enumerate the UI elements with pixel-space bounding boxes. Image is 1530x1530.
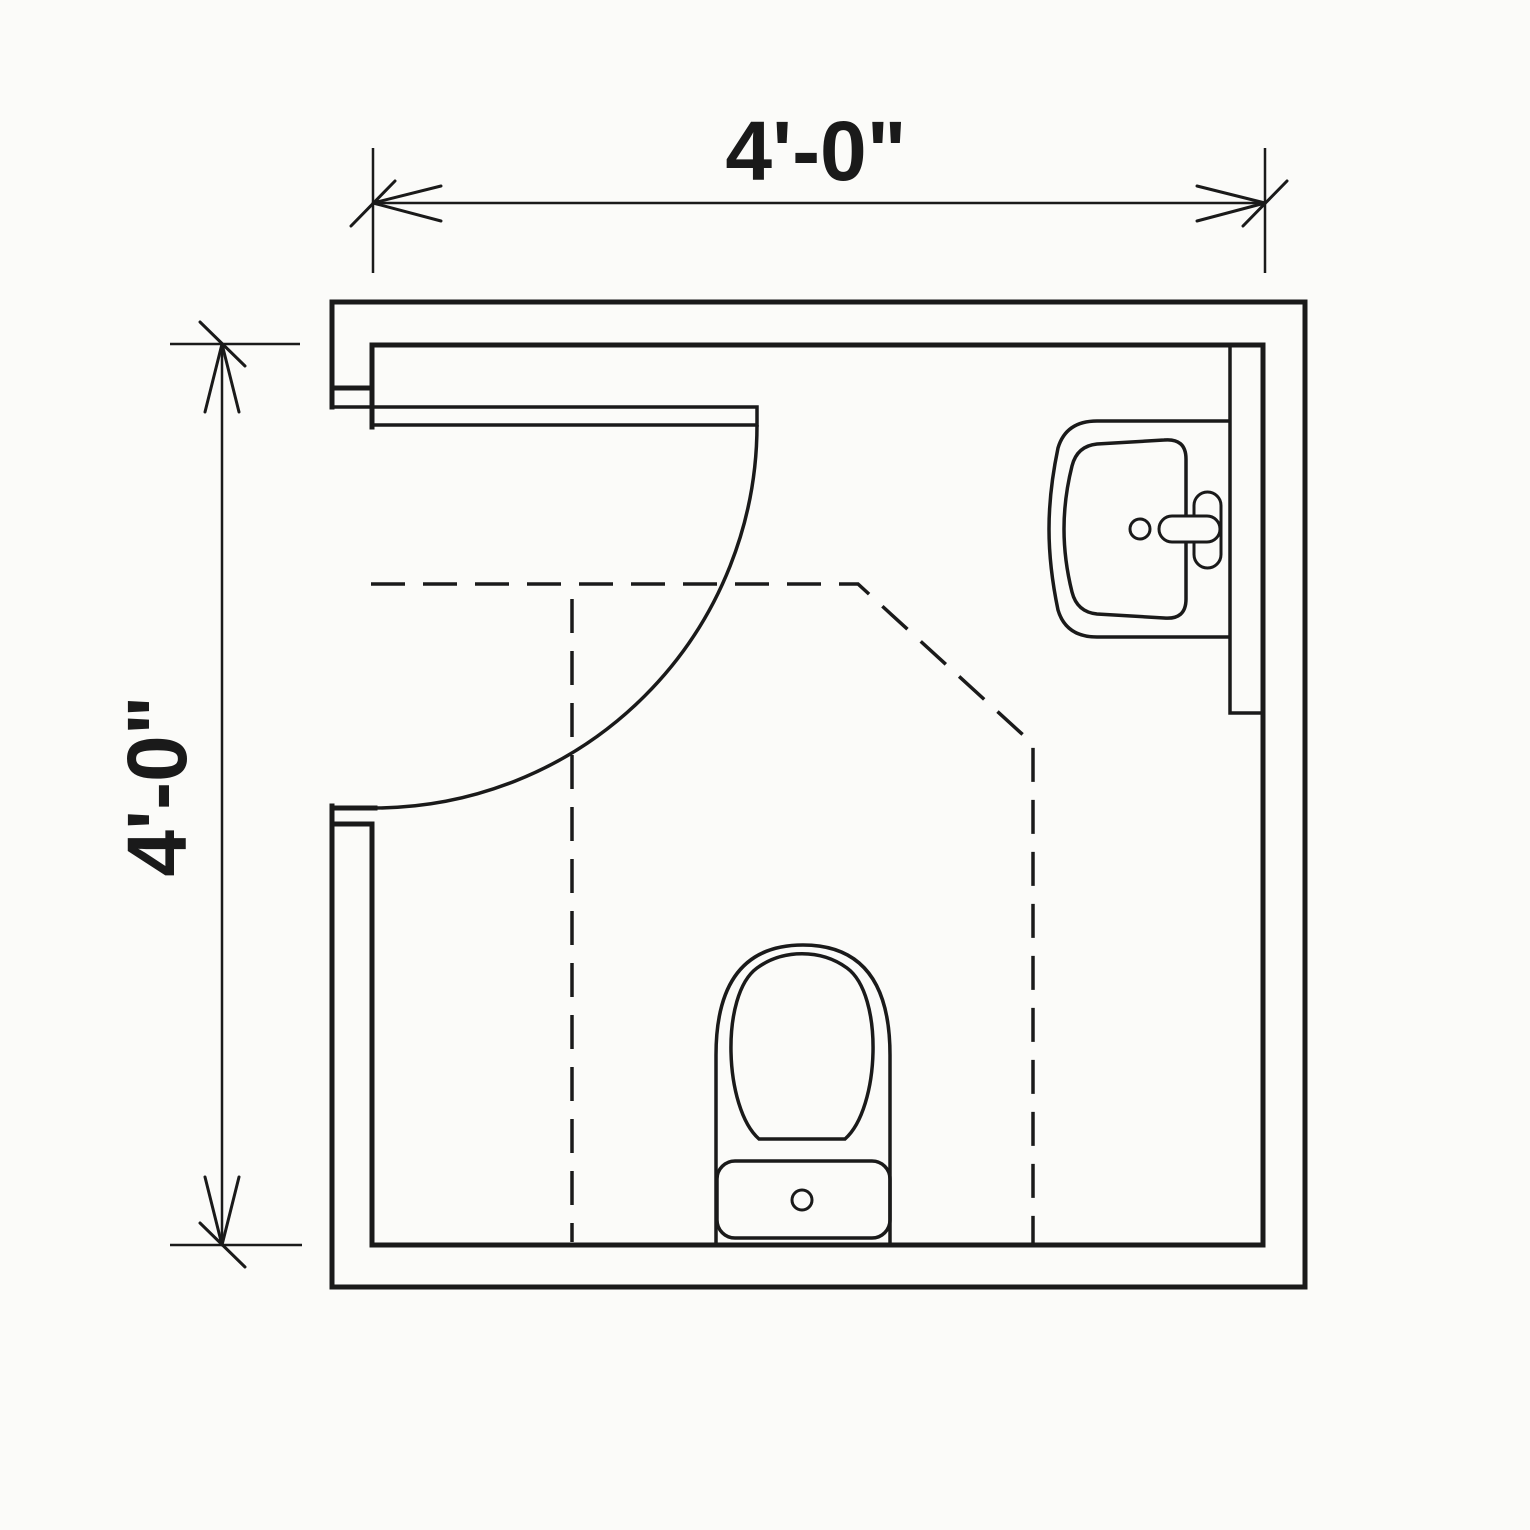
toilet-seat (731, 954, 873, 1139)
toilet-flush-button (792, 1190, 812, 1210)
sink (1049, 345, 1263, 713)
door-leaf (332, 407, 757, 425)
toilet (716, 945, 890, 1243)
dimension-label-left: 4'-0" (110, 695, 204, 876)
door-jamb-bottom-cap (332, 808, 375, 824)
clearance-outline-dashed (371, 584, 1033, 1244)
sink-drain (1130, 519, 1150, 539)
left-dimension: 4'-0" (110, 322, 302, 1267)
door-swing-arc (374, 425, 757, 808)
top-dimension: 4'-0" (351, 104, 1287, 273)
floor-plan: 4'-0" 4'-0" (0, 0, 1530, 1530)
sink-faucet-spout (1159, 516, 1220, 542)
toilet-tank (717, 1161, 890, 1238)
door (332, 407, 757, 808)
sink-plumbing-wall (1230, 345, 1263, 713)
dimension-label-top: 4'-0" (725, 104, 906, 198)
clearance-lines (371, 584, 1033, 1244)
